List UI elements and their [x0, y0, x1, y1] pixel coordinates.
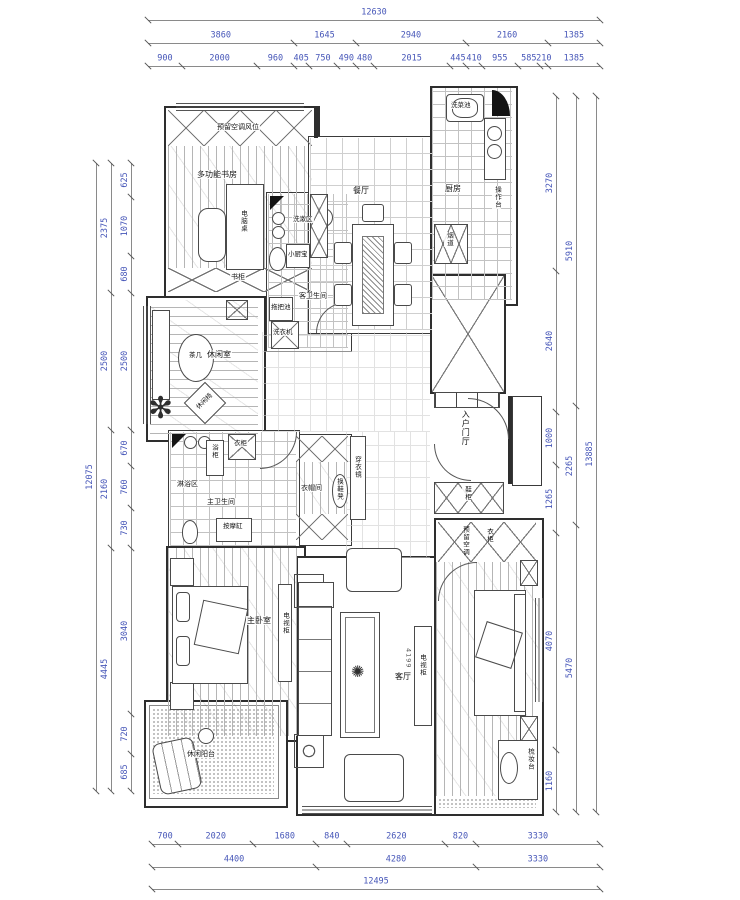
dimension-label: 680 [121, 267, 130, 282]
table-runner [362, 236, 384, 314]
closet-label: 衣帽间 [300, 484, 323, 492]
entry-landing [512, 396, 542, 486]
basin-icon [272, 226, 285, 239]
dimension-line [556, 96, 557, 812]
dresser-stool [500, 752, 518, 784]
dimension-label: 4400 [224, 856, 244, 865]
dining-chair [394, 284, 412, 306]
dimension-label: 12495 [363, 878, 389, 887]
living-tv-label: 电视柜 [417, 654, 426, 677]
wall-entry-right [508, 396, 512, 484]
dimension-label: 750 [315, 55, 330, 64]
dimension-label: 1645 [314, 32, 334, 41]
dimension-line [152, 889, 600, 890]
dimension-label: 410 [466, 55, 481, 64]
bedroom2-wardrobe-label: 衣柜 [484, 528, 493, 543]
dimension-line [576, 96, 577, 812]
wall-stub [314, 106, 318, 138]
desk-label: 电脑桌 [238, 210, 247, 233]
study-window [176, 103, 304, 111]
speaker-icon [294, 734, 324, 768]
dimension-label: 1680 [275, 833, 295, 842]
dimension-label: 960 [268, 55, 283, 64]
dimension-label: 480 [357, 55, 372, 64]
dining-label: 餐厅 [352, 186, 370, 195]
dimension-label: 3330 [528, 833, 548, 842]
dimension-label: 3330 [528, 856, 548, 865]
dimension-label: 955 [492, 55, 507, 64]
study-ac-label: 预留空调风位 [216, 123, 260, 131]
dimension-label: 2020 [206, 833, 226, 842]
tub-label: 按摩缸 [222, 523, 244, 530]
burner-icon [487, 126, 502, 141]
sofa [298, 606, 332, 736]
dimension-label: 820 [453, 833, 468, 842]
bedroom2-reserved-label: 预留空调 [460, 526, 469, 556]
dimension-label: 12075 [86, 464, 95, 490]
dimension-line [148, 43, 600, 44]
dimension-label: 2500 [121, 351, 130, 371]
basin-icon [184, 436, 197, 449]
tv-wall-dim-label: 4199 [403, 648, 412, 669]
dimension-label: 2375 [101, 218, 110, 238]
dimension-label: 2160 [101, 479, 110, 499]
bath-wardrobe-label: 衣柜 [233, 440, 248, 447]
dimension-label: 585 [521, 55, 536, 64]
dimension-label: 1070 [121, 216, 130, 236]
mop-pool-label: 拖把池 [270, 304, 292, 311]
pillow-icon [176, 592, 190, 622]
burner-icon [487, 144, 502, 159]
study-label: 多功能书房 [196, 170, 238, 179]
shower-label: 淋浴区 [176, 480, 199, 488]
nightstand [170, 682, 194, 710]
dimension-label: 760 [121, 479, 130, 494]
bench-label: 换鞋凳 [334, 478, 343, 501]
bedroom2-window [535, 598, 543, 702]
dimension-label: 1000 [546, 428, 555, 448]
dimension-line [152, 844, 600, 845]
master-bedroom-label: 主卧室 [246, 616, 272, 625]
dimension-label: 3040 [121, 621, 130, 641]
dimension-label: 840 [324, 833, 339, 842]
dimension-label: 670 [121, 440, 130, 455]
dimension-label: 13885 [586, 441, 595, 467]
dimension-label: 720 [121, 726, 130, 741]
living-window [302, 806, 432, 814]
dresser-label: 梳妆台 [525, 748, 534, 771]
kitchen-label: 厨房 [444, 184, 462, 193]
leisure-label: 休闲室 [206, 350, 232, 359]
dimension-label: 2265 [566, 455, 575, 475]
dimension-label: 210 [536, 55, 551, 64]
tea-table-label: 茶几 [188, 352, 203, 359]
counter-label: 操作台 [492, 186, 501, 209]
dimension-label: 12630 [361, 9, 387, 18]
pillow-icon [176, 636, 190, 666]
closet-bottom-band [296, 514, 348, 540]
dimension-label: 3860 [211, 32, 231, 41]
dimension-label: 700 [157, 833, 172, 842]
dimension-line [111, 163, 112, 791]
dimension-line [96, 163, 97, 791]
chaise [298, 582, 334, 608]
leisure-ac-box [226, 300, 248, 320]
dimension-label: 2620 [386, 833, 406, 842]
side-table-icon [198, 728, 214, 744]
dimension-label: 490 [339, 55, 354, 64]
balcony-label: 休闲阳台 [186, 750, 216, 758]
plant-icon: ✺ [351, 664, 364, 680]
toilet-icon [269, 247, 286, 271]
lounge-cabinet [152, 310, 170, 400]
study-chair [198, 208, 226, 262]
dimension-label: 685 [121, 765, 130, 780]
nightstand [170, 558, 194, 586]
dimension-label: 730 [121, 520, 130, 535]
dimension-label: 625 [121, 172, 130, 187]
dimension-label: 2015 [401, 55, 421, 64]
dimension-label: 1265 [546, 489, 555, 509]
dimension-label: 1385 [564, 32, 584, 41]
guest-bath-label: 客卫生间 [298, 292, 328, 300]
nightstand [520, 716, 538, 742]
basin-icon [272, 212, 285, 225]
toilet-icon [182, 520, 198, 544]
washer-label: 洗衣机 [272, 329, 294, 336]
dimension-label: 405 [293, 55, 308, 64]
dimension-label: 2640 [546, 331, 555, 351]
dining-chair [334, 242, 352, 264]
dimension-label: 3270 [546, 173, 555, 193]
corner-shelf-icon [270, 196, 284, 210]
mirror-label: 穿衣镜 [352, 456, 361, 479]
dimension-line [152, 867, 600, 868]
flue-label: 烟道 [444, 232, 453, 247]
sink-label: 洗菜池 [450, 102, 472, 109]
dimension-label: 4280 [386, 856, 406, 865]
dimension-label: 900 [157, 55, 172, 64]
plant-icon: ✻ [148, 394, 173, 424]
shoe-cabinet-label: 鞋柜 [462, 486, 471, 501]
dimension-label: 5910 [566, 241, 575, 261]
floor-plan-drawing: 12630 38601645294021601385 9002000960405… [0, 0, 740, 900]
dining-chair [334, 284, 352, 306]
bookcase-label: 书柜 [230, 273, 246, 281]
dimension-label: 1160 [546, 771, 555, 791]
dining-console [310, 194, 328, 258]
dimension-label: 4445 [101, 659, 110, 679]
wash-area-label: 洗漱区 [292, 216, 314, 223]
dimension-label: 2160 [497, 32, 517, 41]
dimension-label: 4070 [546, 631, 555, 651]
dimension-label: 2940 [401, 32, 421, 41]
closet-top-band [296, 436, 348, 462]
dimension-label: 2500 [101, 351, 110, 371]
entry-door-arc [468, 398, 509, 439]
hall-door-arc [434, 444, 471, 481]
dimension-line [596, 96, 597, 812]
dimension-label: 445 [450, 55, 465, 64]
armchair [346, 548, 402, 592]
blanket-icon [194, 600, 249, 655]
bath-cabinet-label: 浴柜 [209, 444, 218, 459]
dimension-label: 1385 [564, 55, 584, 64]
water-heater-label: 小厨宝 [287, 251, 309, 258]
entry-label: 入户门厅 [460, 410, 471, 446]
bedroom-tv-label: 电视柜 [280, 612, 289, 635]
master-bath-label: 主卫生间 [206, 498, 236, 506]
dimension-line [148, 20, 600, 21]
dimension-label: 5470 [566, 658, 575, 678]
nightstand [520, 560, 538, 586]
living-label: 客厅 [394, 672, 412, 681]
dining-chair [394, 242, 412, 264]
dimension-label: 2000 [209, 55, 229, 64]
armchair [344, 754, 404, 802]
dining-chair [362, 204, 384, 222]
